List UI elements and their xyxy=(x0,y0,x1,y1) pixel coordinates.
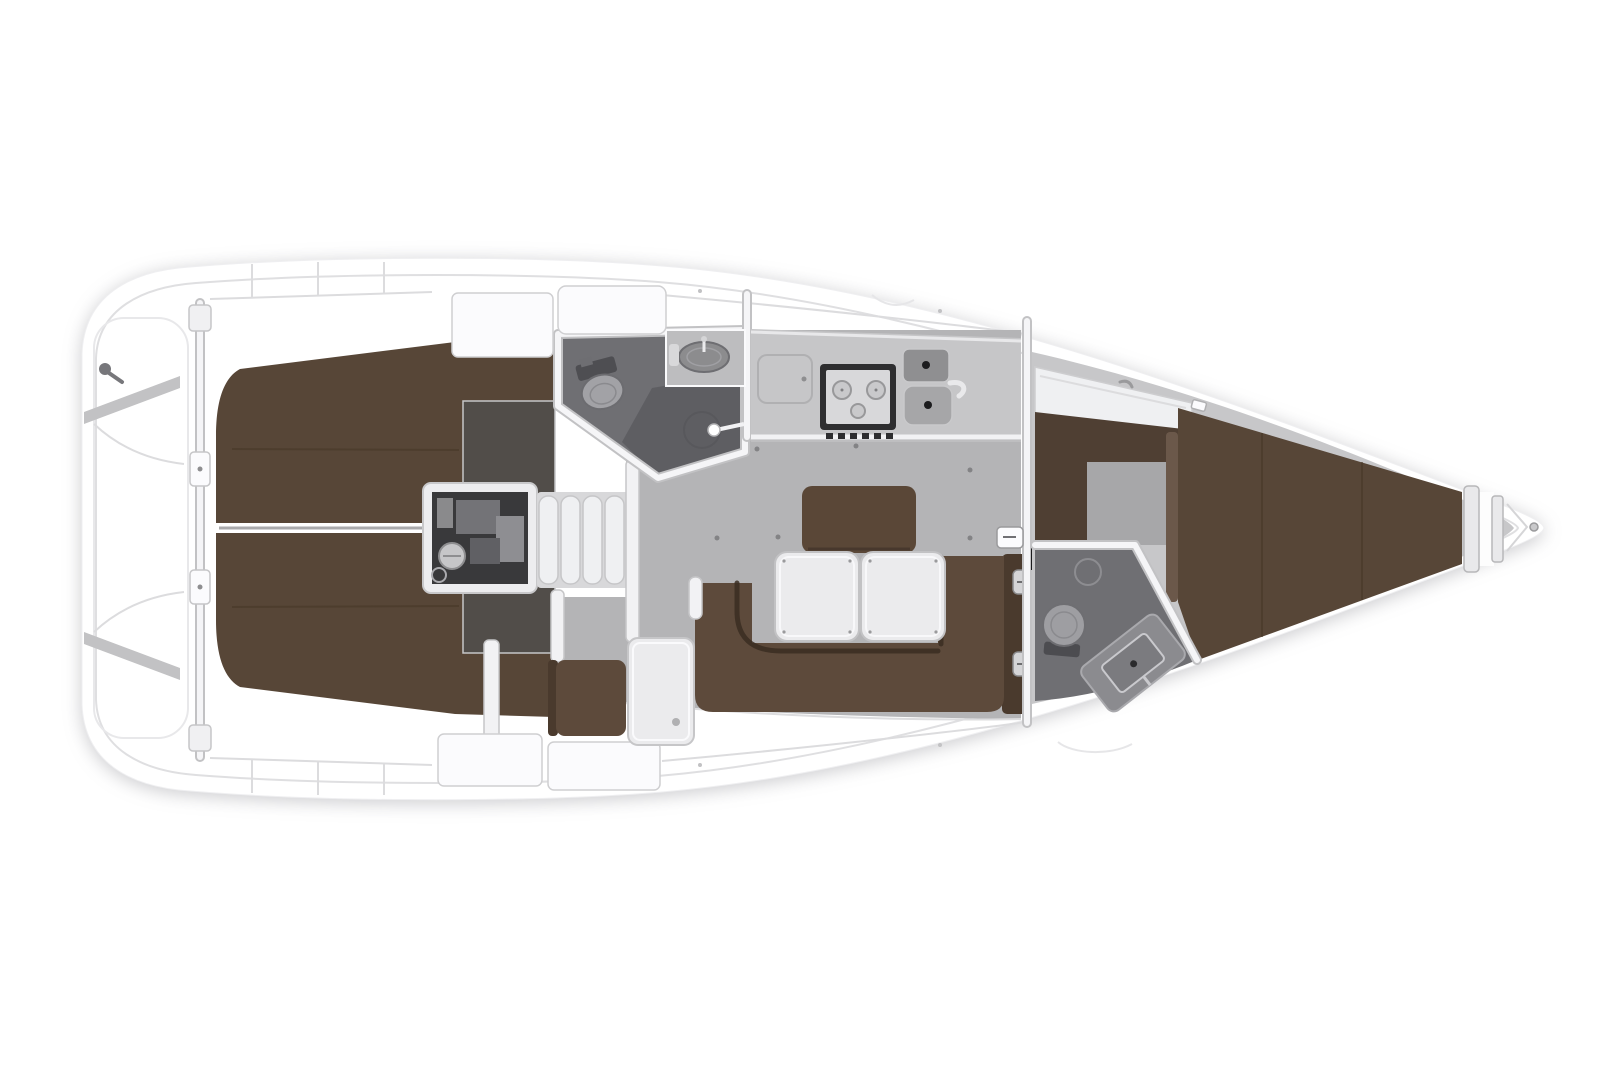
deck-dot xyxy=(938,309,942,313)
floor-dot xyxy=(968,536,973,541)
shower-head-icon xyxy=(708,424,720,436)
deck-notch-bottom xyxy=(1058,742,1132,752)
yacht-floorplan-image xyxy=(0,0,1620,1080)
chart-table xyxy=(628,638,694,745)
table-leaf-right xyxy=(861,552,945,641)
berth-step-strip xyxy=(1166,432,1178,602)
hinge-dot-icon xyxy=(198,585,203,590)
floor-dot xyxy=(854,444,859,449)
engine-part xyxy=(470,538,500,564)
deck-dot xyxy=(698,289,702,293)
deck-dot xyxy=(698,763,702,767)
bulkhead-cap-top xyxy=(189,305,211,331)
floor-dot xyxy=(755,447,760,452)
engine-part xyxy=(496,516,524,562)
burner-dot xyxy=(875,389,878,392)
nav-seat xyxy=(556,660,626,736)
table-dot xyxy=(934,630,937,633)
toilet-icon xyxy=(1043,604,1085,657)
toilet-bowl xyxy=(1043,604,1085,646)
chain-locker-wall xyxy=(1492,496,1503,562)
soap-tray xyxy=(669,344,679,366)
floor-dot xyxy=(968,468,973,473)
aft-cabin-locker-top xyxy=(452,293,553,357)
step-tread xyxy=(561,496,580,584)
table-leaf-left xyxy=(775,552,859,641)
floor-dot xyxy=(715,536,720,541)
faucet-dot xyxy=(701,336,707,342)
saloon-tables xyxy=(775,552,945,641)
burner-dot xyxy=(841,389,844,392)
floor-dot xyxy=(776,535,781,540)
table-dot xyxy=(848,630,851,633)
bulkhead-cap-bottom xyxy=(189,725,211,751)
hatch-garage xyxy=(558,286,666,334)
table-dot xyxy=(848,559,851,562)
companionway-post xyxy=(626,460,639,642)
cabinet-knob-icon xyxy=(802,377,807,382)
step-tread xyxy=(539,496,558,584)
berth-seam xyxy=(232,449,459,450)
hinge-dot-icon xyxy=(198,467,203,472)
cockpit-side-wall xyxy=(484,640,499,744)
step-tread xyxy=(605,496,624,584)
drain-dot xyxy=(922,361,930,369)
saloon-island-seat xyxy=(802,486,916,553)
yacht-floorplan-page xyxy=(0,0,1620,1080)
nav-partition-wall xyxy=(551,590,564,662)
cockpit-locker-bottom-1 xyxy=(438,734,542,786)
bow-fitting-icon xyxy=(1530,523,1538,531)
cockpit-locker-bottom-2 xyxy=(548,742,660,790)
burner-icon xyxy=(851,404,865,418)
table-dot xyxy=(782,559,785,562)
settee-end-post xyxy=(689,577,702,619)
deck-dot xyxy=(938,743,942,747)
step-tread xyxy=(583,496,602,584)
engine-part xyxy=(456,500,500,534)
forward-cabin-floor xyxy=(1087,462,1168,545)
engine-compartment xyxy=(423,483,537,593)
berth-end-wall xyxy=(1464,486,1479,572)
table-dot xyxy=(868,630,871,633)
engine-part xyxy=(437,498,453,528)
table-dot xyxy=(868,559,871,562)
berth-seam xyxy=(232,606,459,607)
table-fitting-icon xyxy=(672,718,680,726)
galley xyxy=(751,329,1021,441)
drain-dot xyxy=(924,401,932,409)
table-dot xyxy=(934,559,937,562)
table-dot xyxy=(782,630,785,633)
